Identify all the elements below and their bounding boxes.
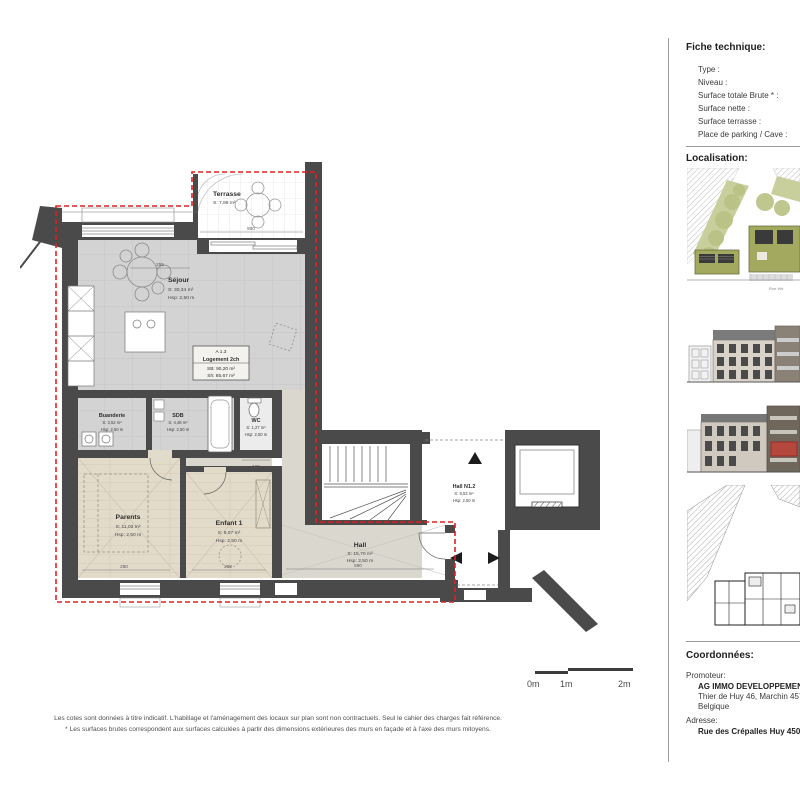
unit-label-box: A 1.3 Logement 2ch SB: 90,20 m² Sh: 85,6… (193, 346, 249, 380)
localisation-title: Localisation: (686, 153, 800, 164)
label-hall-hsp: Hsp: 2,50 m (347, 558, 373, 564)
dim-900: 900 (247, 226, 255, 231)
label-wc: WC (252, 418, 261, 424)
label-sejour: Séjour (168, 277, 190, 284)
label-parents: Parents (116, 514, 141, 521)
elevator (515, 445, 579, 507)
adresse-value: Rue des Crépalles Huy 4500 (698, 727, 800, 736)
scale-2m: 2m (618, 679, 631, 689)
label-buanderie: Buanderie (99, 413, 125, 419)
divider-1 (686, 146, 800, 147)
fiche-parking-cave: Place de parking / Cave : (698, 129, 800, 142)
stairwell-floor (322, 444, 410, 522)
scale-0m: 0m (527, 679, 540, 689)
fiche-type: Type : (698, 64, 800, 77)
label-sejour-hsp: Hsp: 2,50 m (168, 295, 194, 301)
unit-sh: Sh: 85,67 m² (207, 373, 235, 379)
footnote-1: Les cotes sont données à titre indicatif… (4, 713, 552, 724)
site-plan-thumbnail: Rue Wé (687, 168, 800, 306)
label-terrasse: Terrasse (213, 191, 241, 198)
label-hall: Hall (354, 542, 367, 549)
label-enfant-area: S: 9,07 m² (218, 530, 241, 536)
dim-288: 288 (224, 564, 232, 569)
site-plan-bw-thumbnail (687, 485, 800, 631)
label-hall-commun: Hall N1.2 (453, 484, 476, 490)
dim-298: 298 (312, 204, 317, 212)
fiche-niveau: Niveau : (698, 77, 800, 90)
promoteur-address: Thier de Huy 46, Marchin 4570 (698, 692, 800, 701)
label-hall-commun-hsp: Hsp: 2,50 m (453, 498, 476, 503)
unit-highlight (771, 442, 797, 456)
unit-type: Logement 2ch (203, 357, 240, 363)
label-wc-hsp: Hsp: 2,50 m (245, 432, 268, 437)
plan-sheet: 900 298 255 280 288 590 100 Terrasse S: … (0, 0, 800, 800)
divider-2 (686, 641, 800, 642)
label-parents-hsp: Hsp: 2,50 m (115, 532, 141, 538)
coordonnees-title: Coordonnées: (686, 650, 800, 661)
scale-1m: 1m (560, 679, 573, 689)
label-hall-commun-area: S: 9,53 m² (454, 491, 474, 496)
label-enfant: Enfant 1 (216, 520, 243, 527)
footnote-2: * Les surfaces brutes correspondent aux … (4, 724, 552, 735)
unit-sb: SB: 90,20 m² (207, 366, 235, 372)
label-hall-area: S: 15,70 m² (347, 551, 373, 557)
scale-segment-1 (535, 671, 568, 674)
label-enfant-hsp: Hsp: 2,50 m (216, 538, 242, 544)
label-sejour-area: S: 30,34 m² (168, 287, 194, 293)
fiche-surface-nette: Surface nette : (698, 103, 800, 116)
sidebar-divider (668, 38, 669, 762)
label-sdb: SDB (172, 413, 183, 419)
fiche-surface-terrasse: Surface terrasse : (698, 116, 800, 129)
label-parents-area: S: 11,03 m² (116, 524, 141, 530)
adresse-label: Adresse: (686, 716, 718, 725)
sejour-floor (78, 238, 305, 398)
label-sdb-area: S: 4,48 m² (168, 420, 188, 425)
label-buanderie-area: S: 3,52 m² (102, 420, 122, 425)
promoteur-label: Promoteur: (686, 671, 726, 680)
bathtub (208, 396, 232, 452)
promoteur-name: AG IMMO DEVELOPPEMENT (698, 682, 800, 691)
dim-100: 100 (252, 464, 260, 469)
dim-255: 255 (156, 262, 164, 267)
label-wc-area: S: 1,27 m² (246, 425, 266, 430)
washbasin-2 (154, 412, 164, 421)
label-buanderie-hsp: Hsp: 2,50 m (101, 427, 124, 432)
footnotes: Les cotes sont données à titre indicatif… (4, 713, 552, 735)
hall-corridor-floor (282, 390, 305, 530)
fiche-surface-brute: Surface totale Brute * : (698, 90, 800, 103)
kitchen-island (125, 312, 165, 352)
floor-plan: 900 298 255 280 288 590 100 Terrasse S: … (20, 150, 620, 640)
elevation-thumbnail-1 (687, 318, 800, 392)
street-caption: Rue Wé (769, 286, 784, 291)
elevation-thumbnail-2 (687, 400, 800, 480)
promoteur-country: Belgique (698, 702, 729, 711)
washbasin (154, 400, 164, 409)
fiche-title: Fiche technique: (686, 42, 800, 53)
label-terrasse-area: S: 7,98 m² (213, 200, 236, 206)
dim-280: 280 (120, 564, 128, 569)
scale-segment-2 (568, 668, 633, 671)
unit-code: A 1.3 (216, 349, 227, 355)
label-sdb-hsp: Hsp: 2,50 m (167, 427, 190, 432)
